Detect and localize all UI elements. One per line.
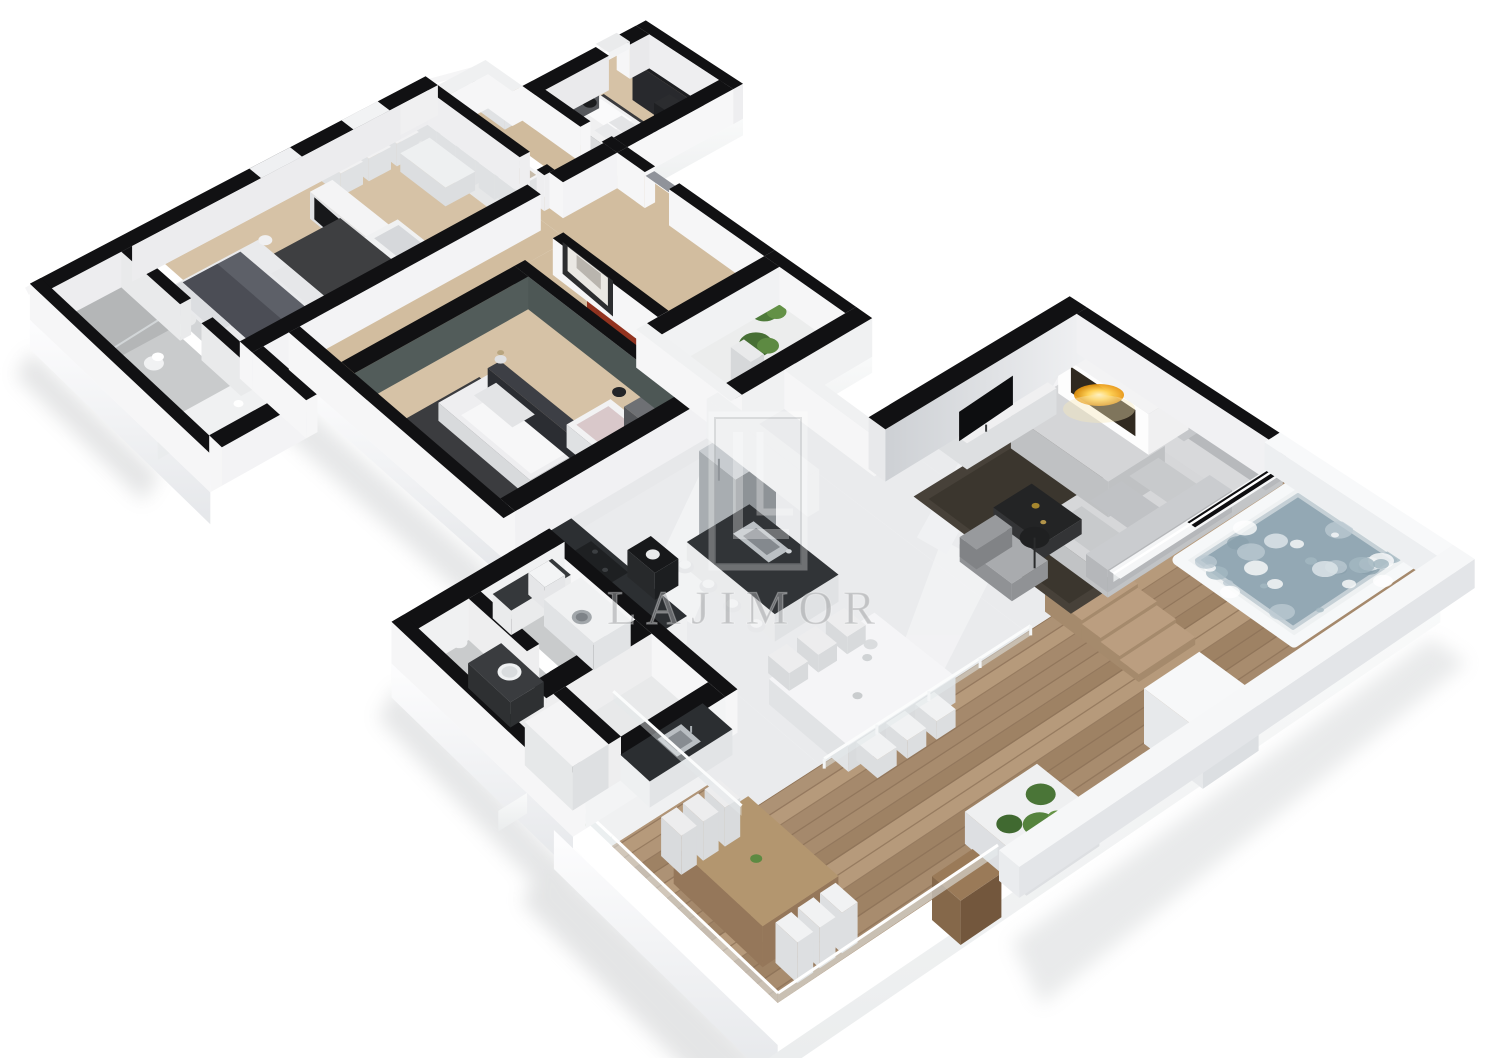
svg-text:LAJIMOR: LAJIMOR	[607, 582, 885, 635]
